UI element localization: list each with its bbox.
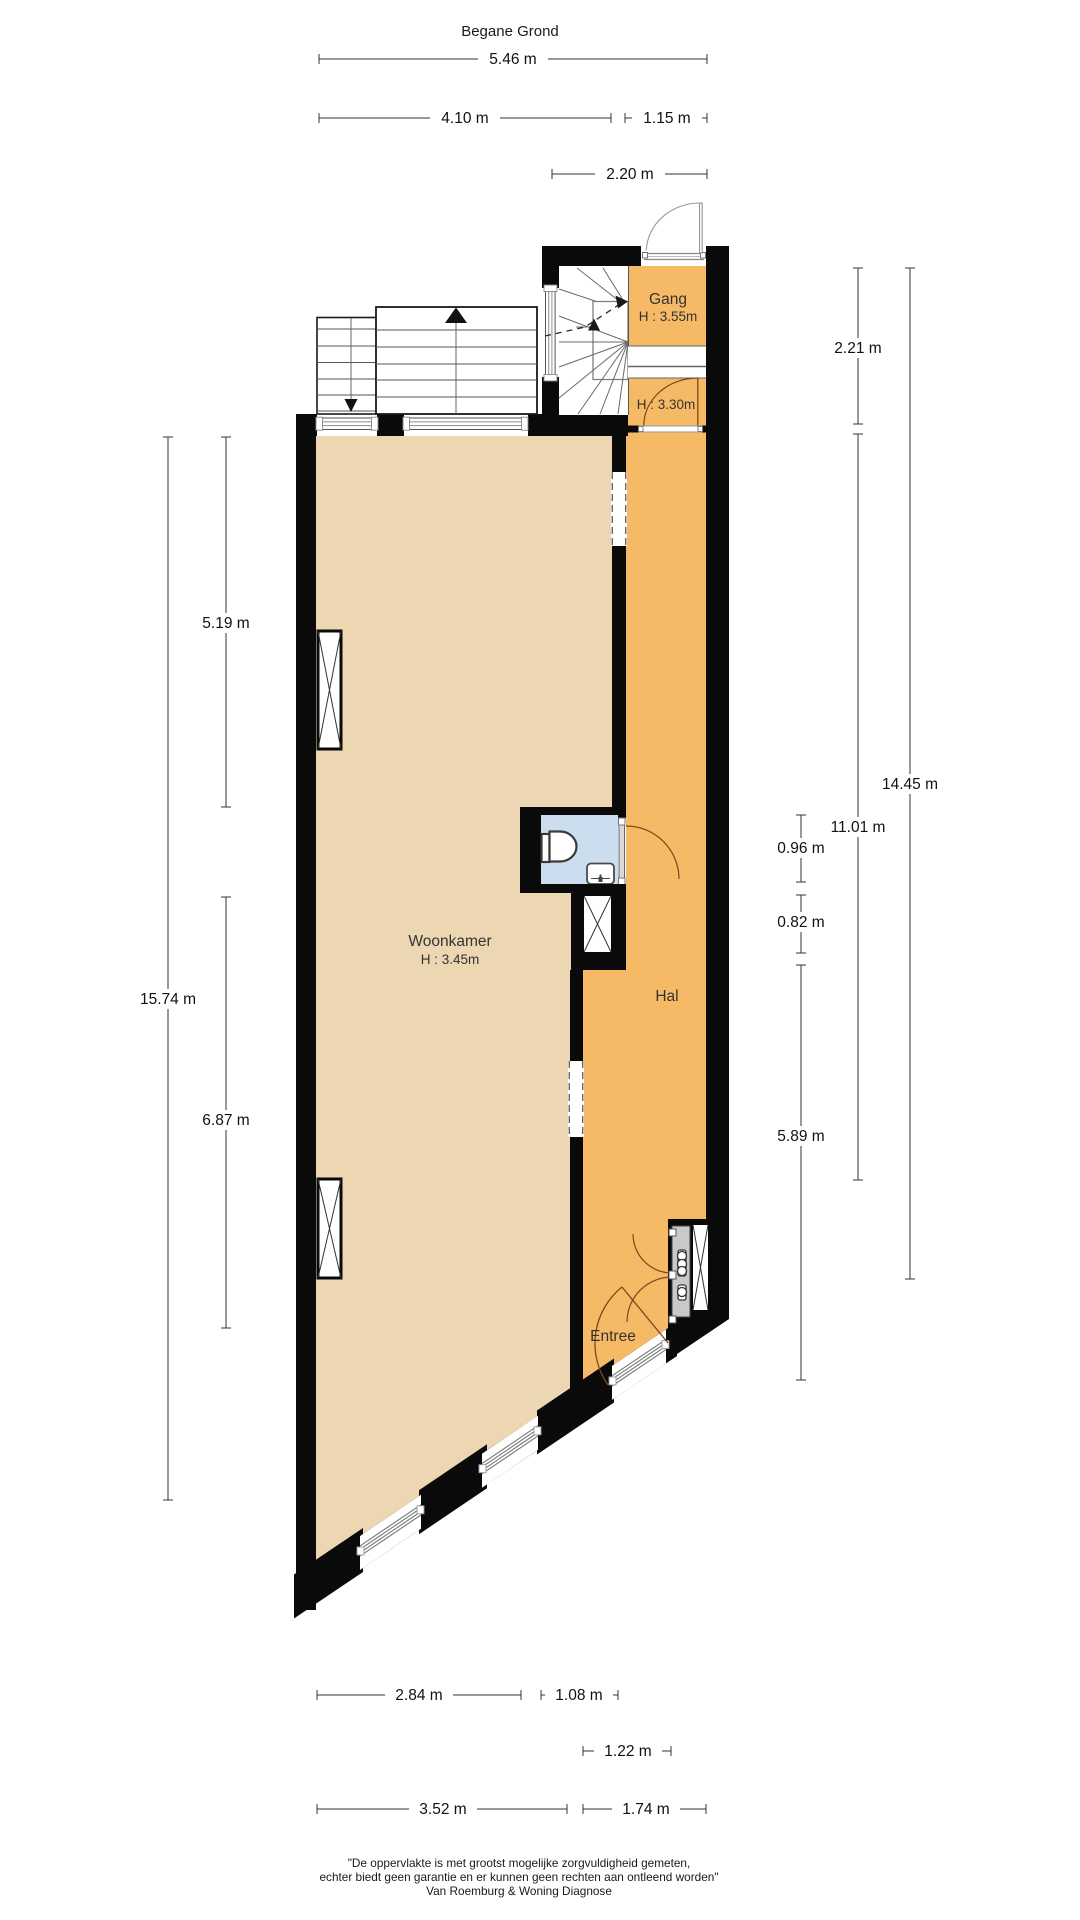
svg-text:Entree: Entree [590, 1328, 636, 1345]
svg-text:4.10 m: 4.10 m [441, 110, 488, 127]
svg-text:"De oppervlakte is met grootst: "De oppervlakte is met grootst mogelijke… [348, 1856, 691, 1870]
svg-text:H : 3.30m: H : 3.30m [637, 397, 696, 412]
svg-text:Woonkamer: Woonkamer [408, 933, 491, 950]
svg-text:0.96 m: 0.96 m [777, 840, 824, 857]
svg-text:1.08 m: 1.08 m [555, 1687, 602, 1704]
svg-text:Van Roemburg & Woning Diagnose: Van Roemburg & Woning Diagnose [426, 1884, 612, 1898]
svg-text:H : 3.45m: H : 3.45m [421, 952, 480, 967]
svg-text:0.82 m: 0.82 m [777, 914, 824, 931]
svg-text:1.22 m: 1.22 m [604, 1743, 651, 1760]
svg-text:2.84 m: 2.84 m [395, 1687, 442, 1704]
svg-text:2.21 m: 2.21 m [834, 340, 881, 357]
svg-text:15.74 m: 15.74 m [140, 991, 196, 1008]
svg-text:5.46 m: 5.46 m [489, 51, 536, 68]
svg-text:Gang: Gang [649, 291, 687, 308]
svg-text:1.15 m: 1.15 m [643, 110, 690, 127]
svg-text:3.52 m: 3.52 m [419, 1801, 466, 1818]
svg-text:5.89 m: 5.89 m [777, 1128, 824, 1145]
svg-text:H : 3.55m: H : 3.55m [639, 309, 698, 324]
svg-text:1.74 m: 1.74 m [622, 1801, 669, 1818]
svg-text:14.45 m: 14.45 m [882, 776, 938, 793]
svg-text:Hal: Hal [655, 988, 678, 1005]
svg-text:11.01 m: 11.01 m [831, 819, 886, 836]
svg-text:5.19 m: 5.19 m [202, 615, 249, 632]
svg-text:6.87 m: 6.87 m [202, 1112, 249, 1129]
svg-text:2.20 m: 2.20 m [606, 166, 653, 183]
svg-text:echter biedt geen garantie en: echter biedt geen garantie en er kunnen … [319, 1870, 718, 1884]
svg-text:Begane Grond: Begane Grond [461, 23, 559, 40]
